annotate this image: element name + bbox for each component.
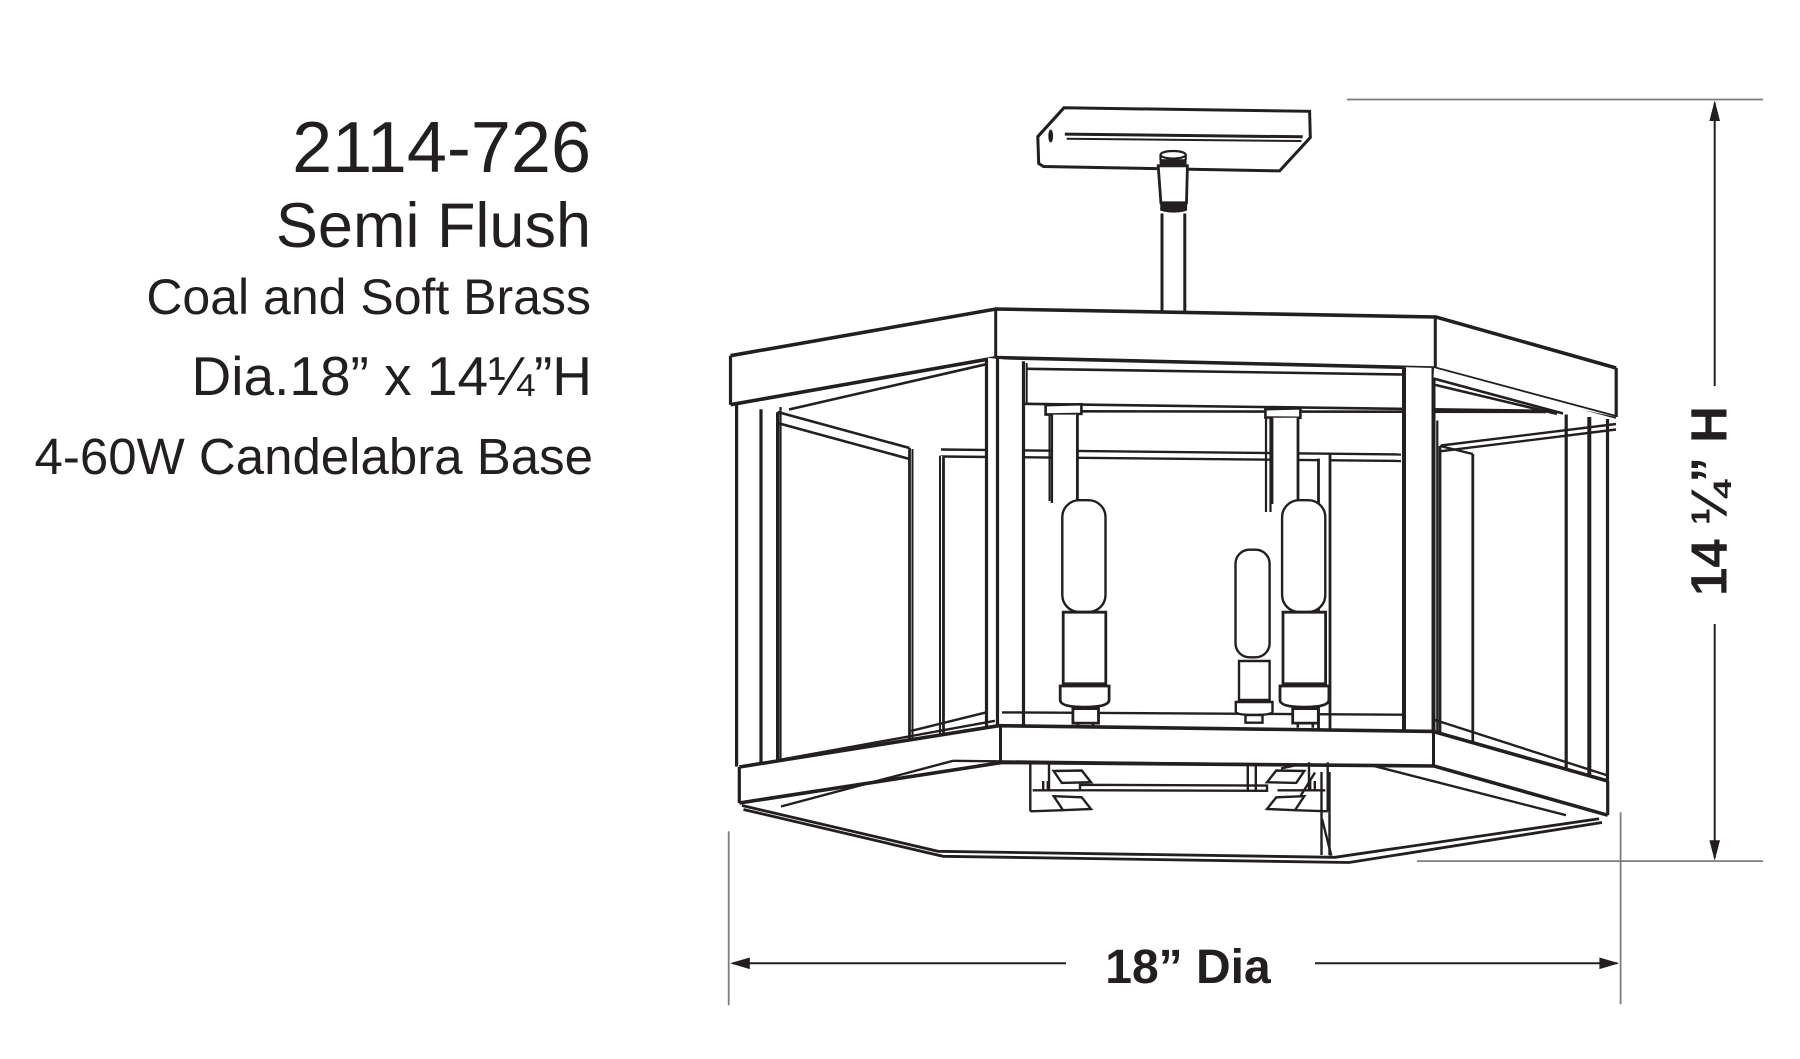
svg-text:18” Dia: 18” Dia [1105, 941, 1271, 994]
svg-text:14 ¼” H: 14 ¼” H [1681, 406, 1738, 596]
svg-text:Semi Flush: Semi Flush [276, 191, 591, 261]
svg-text:Dia.18” x 14¼”H: Dia.18” x 14¼”H [192, 345, 592, 407]
svg-text:4-60W Candelabra Base: 4-60W Candelabra Base [35, 428, 594, 485]
svg-text:Coal and Soft Brass: Coal and Soft Brass [146, 269, 591, 325]
svg-text:2114-726: 2114-726 [292, 108, 591, 188]
